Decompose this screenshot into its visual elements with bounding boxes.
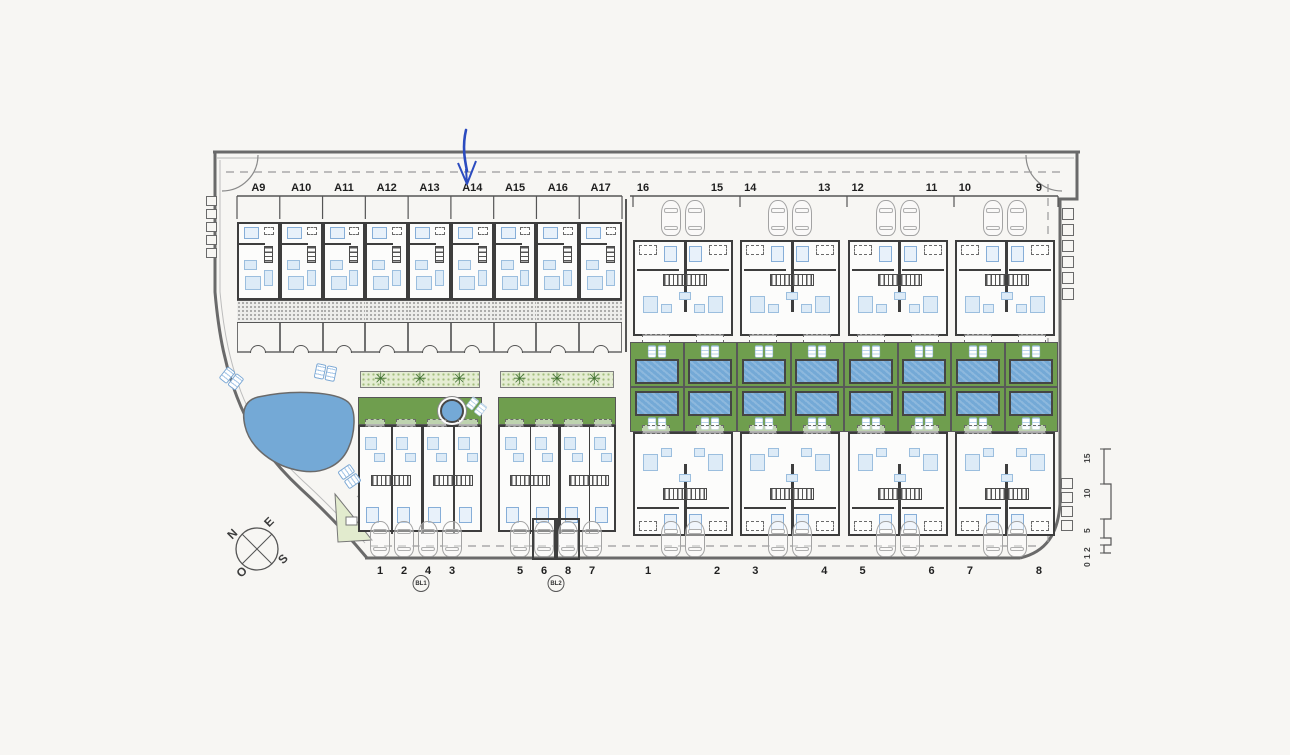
annotation-layer: [0, 0, 1290, 755]
site-plan-drawing: A9A10A11A12A13A14A15A16A1716151413121110…: [0, 0, 1290, 755]
hand-drawn-arrow-annotation: [458, 130, 476, 184]
